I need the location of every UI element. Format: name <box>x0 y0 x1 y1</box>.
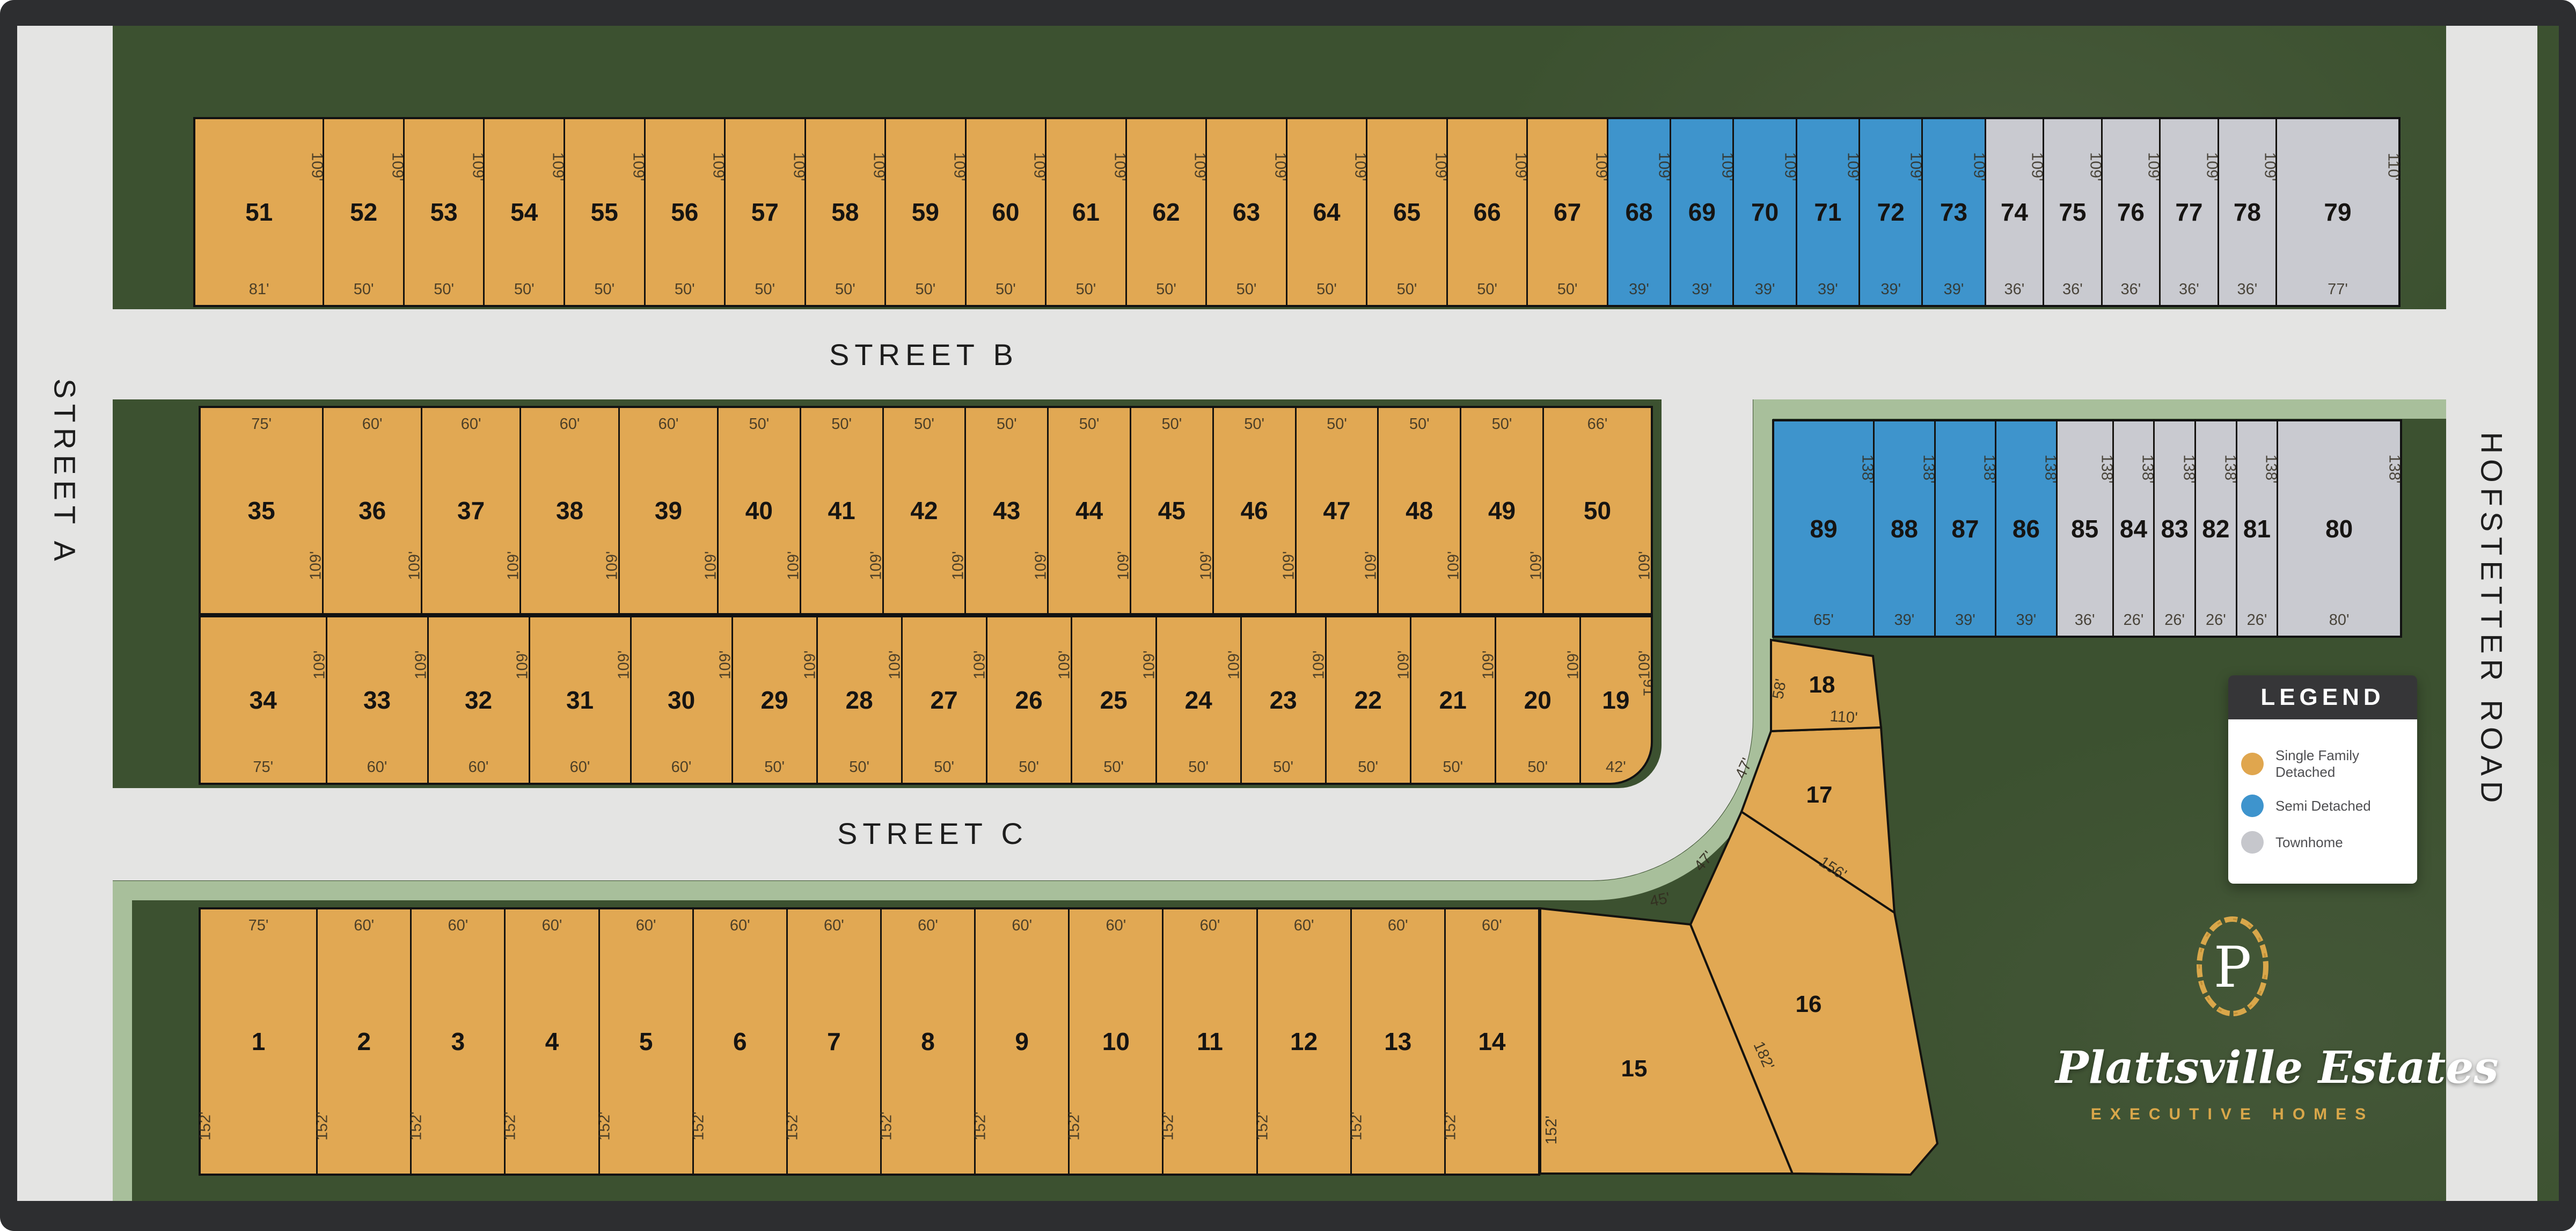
lot-dim: 50' <box>764 759 785 776</box>
lot-50[interactable]: 66'109'50 <box>1542 408 1651 613</box>
lot-number: 45 <box>1158 496 1185 525</box>
lot-dim: 60' <box>918 917 938 935</box>
lot-number: 82 <box>2202 514 2229 543</box>
lot-28[interactable]: 50'109'28 <box>816 617 901 783</box>
lot-88[interactable]: 39'138'88 <box>1873 421 1934 636</box>
lot-number: 33 <box>363 686 391 715</box>
lot-dim: 60' <box>1200 917 1220 935</box>
lot-60[interactable]: 109'50'60 <box>965 119 1045 305</box>
lot-dim: 26' <box>2164 611 2185 629</box>
lot-4[interactable]: 60'152'4 <box>504 909 598 1174</box>
lot-number: 61 <box>1072 198 1100 227</box>
semi-detached-swatch-icon <box>2241 795 2264 817</box>
lot-34[interactable]: 75'109'34 <box>201 617 326 783</box>
lot-number: 28 <box>846 686 873 715</box>
lot-number: 65 <box>1393 198 1421 227</box>
lot-number: 18 <box>1809 672 1835 698</box>
lot-71[interactable]: 109'39'71 <box>1796 119 1858 305</box>
lot-dim: 50' <box>1327 416 1347 433</box>
legend-item-townhome: Townhome <box>2241 831 2404 854</box>
lot-dim: 50' <box>1244 416 1264 433</box>
lot-number: 39 <box>655 496 682 525</box>
lot-number: 63 <box>1233 198 1260 227</box>
lot-dim: 50' <box>1557 281 1578 298</box>
lot-30[interactable]: 60'109'30 <box>630 617 731 783</box>
lot-67[interactable]: 109'50'67 <box>1526 119 1607 305</box>
lot-dim: 50' <box>831 416 852 433</box>
lot-number: 26 <box>1015 686 1043 715</box>
lot-number: 12 <box>1290 1027 1318 1056</box>
lot-number: 17 <box>1806 782 1833 808</box>
lot-77[interactable]: 109'36'77 <box>2159 119 2218 305</box>
lot-number: 42 <box>910 496 938 525</box>
legend-item-label: Townhome <box>2275 834 2343 851</box>
lot-number: 4 <box>545 1027 559 1056</box>
lot-55[interactable]: 109'50'55 <box>563 119 644 305</box>
lot-number: 41 <box>828 496 855 525</box>
lot-number: 36 <box>358 496 386 525</box>
lot-dim: 36' <box>2179 281 2199 298</box>
lot-dim: 152' <box>1441 1112 1459 1141</box>
lot-46[interactable]: 50'109'46 <box>1212 408 1295 613</box>
laurel-monogram-icon: P <box>2187 907 2278 1025</box>
lot-number: 50 <box>1584 496 1611 525</box>
lot-dim: 152' <box>196 1112 214 1141</box>
svg-text:P: P <box>2214 935 2252 1000</box>
lot-dim: 39' <box>1818 281 1838 298</box>
lot-40[interactable]: 50'109'40 <box>717 408 800 613</box>
lot-number: 79 <box>2324 198 2351 227</box>
lot-number: 13 <box>1384 1027 1411 1056</box>
lot-dim: 50' <box>914 416 934 433</box>
lot-number: 89 <box>1810 514 1837 543</box>
lot-47[interactable]: 50'109'47 <box>1295 408 1378 613</box>
lot-number: 51 <box>245 198 273 227</box>
lot-dim: 110' <box>1829 708 1858 727</box>
lot-number: 1 <box>252 1027 266 1056</box>
lot-number: 84 <box>2120 514 2147 543</box>
street-b-label: STREET B <box>829 337 1019 372</box>
lot-5[interactable]: 60'152'5 <box>598 909 692 1174</box>
lot-33[interactable]: 60'109'33 <box>326 617 427 783</box>
lot-43[interactable]: 50'109'43 <box>964 408 1047 613</box>
lot-72[interactable]: 109'39'72 <box>1858 119 1921 305</box>
lot-row-mid-lower: 75'109'3460'109'3360'109'3260'109'3160'1… <box>199 615 1653 785</box>
lot-number: 57 <box>751 198 779 227</box>
lot-dim: 60' <box>824 917 844 935</box>
lot-number: 58 <box>831 198 859 227</box>
lot-74[interactable]: 109'36'74 <box>1985 119 2043 305</box>
lot-12[interactable]: 60'152'12 <box>1256 909 1350 1174</box>
lot-65[interactable]: 109'50'65 <box>1366 119 1446 305</box>
legend-item-label: Single Family Detached <box>2275 747 2404 781</box>
lot-number: 77 <box>2175 198 2202 227</box>
lot-11[interactable]: 60'152'11 <box>1162 909 1256 1174</box>
lot-dim: 152' <box>784 1112 801 1141</box>
lot-number: 83 <box>2161 514 2189 543</box>
lot-number: 21 <box>1439 686 1467 715</box>
lot-dim: 50' <box>1076 281 1096 298</box>
lot-dim: 50' <box>594 281 614 298</box>
lot-number: 60 <box>992 198 1019 227</box>
lot-number: 10 <box>1102 1027 1130 1056</box>
lot-dim: 50' <box>1316 281 1337 298</box>
lot-76[interactable]: 109'36'76 <box>2101 119 2160 305</box>
lot-dim: 50' <box>1443 759 1463 776</box>
lot-number: 29 <box>761 686 788 715</box>
lot-dim: 26' <box>2247 611 2267 629</box>
lot-37[interactable]: 60'109'37 <box>421 408 519 613</box>
lot-row-east: 65'138'8939'138'8839'138'8739'138'8636'1… <box>1772 419 2402 638</box>
lot-27[interactable]: 50'109'27 <box>901 617 986 783</box>
lot-dim: 60' <box>542 917 562 935</box>
lot-number: 81 <box>2243 514 2271 543</box>
lot-dim: 36' <box>2004 281 2025 298</box>
lot-63[interactable]: 109'50'63 <box>1205 119 1286 305</box>
legend-item-single-family: Single Family Detached <box>2241 747 2404 781</box>
lot-number: 9 <box>1015 1027 1029 1056</box>
lot-dim: 60' <box>730 917 750 935</box>
lot-dim: 60' <box>1294 917 1314 935</box>
lot-dim: 26' <box>2206 611 2226 629</box>
lot-87[interactable]: 39'138'87 <box>1934 421 1995 636</box>
lot-dim: 65' <box>1813 611 1834 629</box>
lot-number: 27 <box>931 686 958 715</box>
lot-row-south: 75'152'160'152'260'152'360'152'460'152'5… <box>199 907 1540 1176</box>
lot-dim: 60' <box>1106 917 1126 935</box>
lot-dim: 50' <box>1161 416 1182 433</box>
lot-number: 34 <box>250 686 277 715</box>
lot-89[interactable]: 65'138'89 <box>1774 421 1873 636</box>
lot-66[interactable]: 109'50'66 <box>1446 119 1527 305</box>
lot-42[interactable]: 50'109'42 <box>882 408 965 613</box>
lot-10[interactable]: 60'152'10 <box>1068 909 1162 1174</box>
lot-69[interactable]: 109'39'69 <box>1670 119 1732 305</box>
lot-number: 66 <box>1474 198 1501 227</box>
lot-21[interactable]: 50'109'21 <box>1410 617 1495 783</box>
lot-number: 44 <box>1075 496 1103 525</box>
lot-dim: 39' <box>2016 611 2037 629</box>
lot-number: 55 <box>591 198 618 227</box>
lot-dim: 50' <box>1019 759 1039 776</box>
lot-dim: 50' <box>835 281 855 298</box>
lot-59[interactable]: 109'50'59 <box>884 119 965 305</box>
lot-number: 22 <box>1355 686 1382 715</box>
lot-48[interactable]: 50'109'48 <box>1377 408 1460 613</box>
lot-dim: 152' <box>690 1112 707 1141</box>
lot-38[interactable]: 60'109'38 <box>519 408 618 613</box>
lot-57[interactable]: 109'50'57 <box>724 119 804 305</box>
lot-dim: 60' <box>636 917 656 935</box>
lot-number: 47 <box>1323 496 1350 525</box>
lot-25[interactable]: 50'109'25 <box>1071 617 1155 783</box>
lot-dim: 152' <box>1348 1112 1365 1141</box>
lot-dim: 50' <box>1156 281 1176 298</box>
lot-dim: 50' <box>514 281 535 298</box>
lot-number: 31 <box>566 686 594 715</box>
lot-39[interactable]: 60'109'39 <box>618 408 717 613</box>
lot-dim: 60' <box>1012 917 1032 935</box>
legend-item-label: Semi Detached <box>2275 798 2371 814</box>
lot-dim: 50' <box>749 416 769 433</box>
lot-86[interactable]: 39'138'86 <box>1995 421 2056 636</box>
lot-number: 24 <box>1185 686 1212 715</box>
lot-dim: 50' <box>675 281 695 298</box>
lot-number: 40 <box>745 496 773 525</box>
lot-82[interactable]: 26'138'82 <box>2194 421 2236 636</box>
lot-dim: 152' <box>1160 1112 1177 1141</box>
lot-dim: 60' <box>658 416 679 433</box>
lot-number: 35 <box>248 496 275 525</box>
hofstetter-road-label: HOFSTETTER ROAD <box>2475 432 2509 808</box>
lot-dim: 39' <box>1629 281 1649 298</box>
lot-dim: 58' <box>1769 678 1790 701</box>
lot-dim: 152' <box>877 1112 895 1141</box>
lot-35[interactable]: 75'109'35 <box>201 408 322 613</box>
lot-31[interactable]: 60'109'31 <box>529 617 630 783</box>
lot-number: 67 <box>1554 198 1581 227</box>
lot-dim: 39' <box>1755 281 1775 298</box>
lot-dim: 60' <box>354 917 374 935</box>
lot-7[interactable]: 60'152'7 <box>786 909 880 1174</box>
lot-22[interactable]: 50'109'22 <box>1325 617 1410 783</box>
lot-number: 76 <box>2117 198 2145 227</box>
brand-name: Plattsville Estates <box>2055 1042 2410 1094</box>
lot-dim: 50' <box>849 759 869 776</box>
lot-dim: 50' <box>996 281 1016 298</box>
lot-dim: 152' <box>1066 1112 1084 1141</box>
lot-24[interactable]: 50'109'24 <box>1155 617 1240 783</box>
lot-1[interactable]: 75'152'1 <box>201 909 316 1174</box>
lot-dim: 152' <box>408 1112 426 1141</box>
lot-dim: 60' <box>362 416 383 433</box>
lot-45[interactable]: 50'109'45 <box>1130 408 1212 613</box>
lot-6[interactable]: 60'152'6 <box>692 909 786 1174</box>
lot-number: 14 <box>1478 1027 1505 1056</box>
lot-54[interactable]: 109'50'54 <box>483 119 563 305</box>
lot-53[interactable]: 109'50'53 <box>403 119 484 305</box>
lot-number: 49 <box>1488 496 1516 525</box>
lot-29[interactable]: 50'109'29 <box>731 617 816 783</box>
lot-dim: 60' <box>1388 917 1408 935</box>
lot-number: 88 <box>1891 514 1918 543</box>
lot-dim: 39' <box>1692 281 1712 298</box>
lot-number: 72 <box>1877 198 1905 227</box>
street-a <box>17 26 113 1201</box>
lot-dim: 50' <box>1358 759 1378 776</box>
lot-number: 68 <box>1625 198 1652 227</box>
lot-dim: 45' <box>1648 890 1672 910</box>
lot-44[interactable]: 50'109'44 <box>1047 408 1130 613</box>
lot-dim: 36' <box>2121 281 2141 298</box>
lot-number: 8 <box>921 1027 935 1056</box>
lot-number: 48 <box>1406 496 1433 525</box>
lot-dim: 50' <box>755 281 775 298</box>
lot-dim: 50' <box>1397 281 1417 298</box>
lot-3[interactable]: 60'152'3 <box>410 909 504 1174</box>
lot-number: 71 <box>1814 198 1841 227</box>
lot-number: 64 <box>1313 198 1340 227</box>
lot-32[interactable]: 60'109'32 <box>427 617 529 783</box>
lot-13[interactable]: 60'152'13 <box>1350 909 1444 1174</box>
lot-52[interactable]: 109'50'52 <box>323 119 403 305</box>
lot-70[interactable]: 109'39'70 <box>1732 119 1795 305</box>
lot-58[interactable]: 109'50'58 <box>804 119 885 305</box>
lot-number: 11 <box>1197 1027 1223 1056</box>
lot-number: 6 <box>733 1027 747 1056</box>
lot-number: 3 <box>451 1027 465 1056</box>
lot-8[interactable]: 60'152'8 <box>880 909 974 1174</box>
lot-dim: 60' <box>1482 917 1502 935</box>
site-plan: STREET A HOFSTETTER ROAD STREET B STREET… <box>0 0 2576 1231</box>
lot-number: 7 <box>827 1027 841 1056</box>
lot-dim: 75' <box>248 917 269 935</box>
legend: LEGEND Single Family Detached Semi Detac… <box>2228 675 2417 884</box>
lot-number: 2 <box>357 1027 371 1056</box>
lot-number: 32 <box>465 686 492 715</box>
lot-14[interactable]: 60'152'14 <box>1444 909 1538 1174</box>
lot-83[interactable]: 26'138'83 <box>2153 421 2194 636</box>
lot-number: 54 <box>510 198 538 227</box>
lot-dim: 75' <box>251 416 272 433</box>
lot-dim: 75' <box>253 759 273 776</box>
lot-73[interactable]: 109'39'73 <box>1921 119 1984 305</box>
lot-2[interactable]: 60'152'2 <box>316 909 410 1174</box>
lot-dim: 50' <box>1409 416 1430 433</box>
lot-number: 62 <box>1152 198 1180 227</box>
lot-dim: 39' <box>1894 611 1915 629</box>
lot-dim: 50' <box>354 281 374 298</box>
lot-dim: 39' <box>1944 281 1964 298</box>
legend-title: LEGEND <box>2228 675 2417 719</box>
lot-number: 23 <box>1270 686 1297 715</box>
lot-number: 15 <box>1621 1055 1648 1082</box>
lot-number: 69 <box>1688 198 1716 227</box>
lot-number: 73 <box>1940 198 1967 227</box>
street-c-label: STREET C <box>837 816 1028 851</box>
lot-9[interactable]: 60'152'9 <box>974 909 1068 1174</box>
lot-number: 52 <box>350 198 377 227</box>
lot-dim: 50' <box>1477 281 1497 298</box>
lot-number: 74 <box>2001 198 2028 227</box>
lot-75[interactable]: 109'36'75 <box>2043 119 2101 305</box>
lot-number: 70 <box>1751 198 1779 227</box>
lot-number: 30 <box>668 686 695 715</box>
lot-number: 5 <box>639 1027 653 1056</box>
lot-dim: 77' <box>2328 281 2348 298</box>
lot-dim: 80' <box>2329 611 2350 629</box>
lot-62[interactable]: 109'50'62 <box>1125 119 1206 305</box>
lot-dim: 50' <box>1492 416 1512 433</box>
lot-number: 46 <box>1241 496 1268 525</box>
lot-dim: 50' <box>915 281 935 298</box>
lot-dim: 152' <box>502 1112 519 1141</box>
lot-41[interactable]: 50'109'41 <box>800 408 882 613</box>
lot-dim: 50' <box>1273 759 1293 776</box>
lot-number: 38 <box>556 496 583 525</box>
lot-49[interactable]: 50'109'49 <box>1460 408 1542 613</box>
lot-dim: 109' <box>1636 551 1654 580</box>
lot-row-north: 109'81'51109'50'52109'50'53109'50'54109'… <box>193 117 2401 307</box>
lot-number: 85 <box>2071 514 2098 543</box>
lot-dim: 60' <box>671 759 692 776</box>
lot-dim: 66' <box>1587 416 1608 433</box>
lot-68[interactable]: 109'39'68 <box>1607 119 1670 305</box>
lot-dim: 50' <box>1188 759 1209 776</box>
lot-number: 86 <box>2012 514 2040 543</box>
lot-dim: 81' <box>249 281 269 298</box>
lot-dim: 152' <box>314 1112 332 1141</box>
lot-23[interactable]: 50'109'23 <box>1240 617 1325 783</box>
lot-dim: 50' <box>1103 759 1124 776</box>
townhome-swatch-icon <box>2241 831 2264 854</box>
lot-dim: 50' <box>997 416 1017 433</box>
lot-number: 16 <box>1796 991 1822 1017</box>
lot-number: 43 <box>993 496 1020 525</box>
lot-dim: 60' <box>448 917 468 935</box>
lot-dim: 60' <box>560 416 580 433</box>
lot-56[interactable]: 109'50'56 <box>644 119 724 305</box>
lot-78[interactable]: 109'36'78 <box>2218 119 2276 305</box>
lot-number: 59 <box>912 198 939 227</box>
lot-number: 25 <box>1100 686 1128 715</box>
street-b <box>113 309 2446 399</box>
lot-number: 80 <box>2325 514 2353 543</box>
lot-80[interactable]: 80'138'80 <box>2277 421 2400 636</box>
lot-36[interactable]: 60'109'36 <box>322 408 421 613</box>
street-a-label: STREET A <box>48 378 83 566</box>
lot-number: 53 <box>430 198 458 227</box>
lot-64[interactable]: 109'50'64 <box>1286 119 1366 305</box>
lot-dim: 50' <box>434 281 454 298</box>
lot-dim: 138' <box>2385 455 2403 484</box>
lot-85[interactable]: 36'138'85 <box>2056 421 2112 636</box>
lot-dim: 50' <box>1079 416 1100 433</box>
lot-dim: 60' <box>367 759 387 776</box>
lot-dim: 60' <box>461 416 481 433</box>
legend-item-semi-detached: Semi Detached <box>2241 795 2404 817</box>
lot-81[interactable]: 26'138'81 <box>2236 421 2277 636</box>
lot-dim: 36' <box>2237 281 2258 298</box>
lot-cluster-southeast: 15 16 17 18 45' 152' 47' 156' 182' 47' 5… <box>1540 633 1991 1176</box>
lot-number: 87 <box>1951 514 1979 543</box>
lot-61[interactable]: 109'50'61 <box>1045 119 1125 305</box>
lot-number: 37 <box>457 496 485 525</box>
lot-dim: 152' <box>972 1112 990 1141</box>
lot-dim: 47' <box>1732 755 1756 781</box>
lot-dim: 50' <box>1236 281 1257 298</box>
lot-dim: 26' <box>2124 611 2144 629</box>
lot-number: 78 <box>2234 198 2261 227</box>
lot-84[interactable]: 26'138'84 <box>2112 421 2154 636</box>
lot-number: 56 <box>671 198 698 227</box>
lot-79[interactable]: 110'77'79 <box>2275 119 2398 305</box>
lot-26[interactable]: 50'109'26 <box>986 617 1071 783</box>
lot-51[interactable]: 109'81'51 <box>195 119 323 305</box>
lot-dim: 39' <box>1880 281 1901 298</box>
lot-dim: 60' <box>570 759 590 776</box>
lot-dim: 60' <box>469 759 489 776</box>
lot-dim: 152' <box>1543 1116 1560 1145</box>
lot-dim: 110' <box>2384 153 2402 181</box>
lot-dim: 152' <box>1254 1112 1271 1141</box>
single-family-swatch-icon <box>2241 753 2264 775</box>
lot-dim: 39' <box>1955 611 1975 629</box>
lot-dim: 36' <box>2075 611 2095 629</box>
lot-dim: 50' <box>934 759 954 776</box>
lot-dim: 47' <box>1691 848 1717 875</box>
lot-number: 75 <box>2059 198 2086 227</box>
